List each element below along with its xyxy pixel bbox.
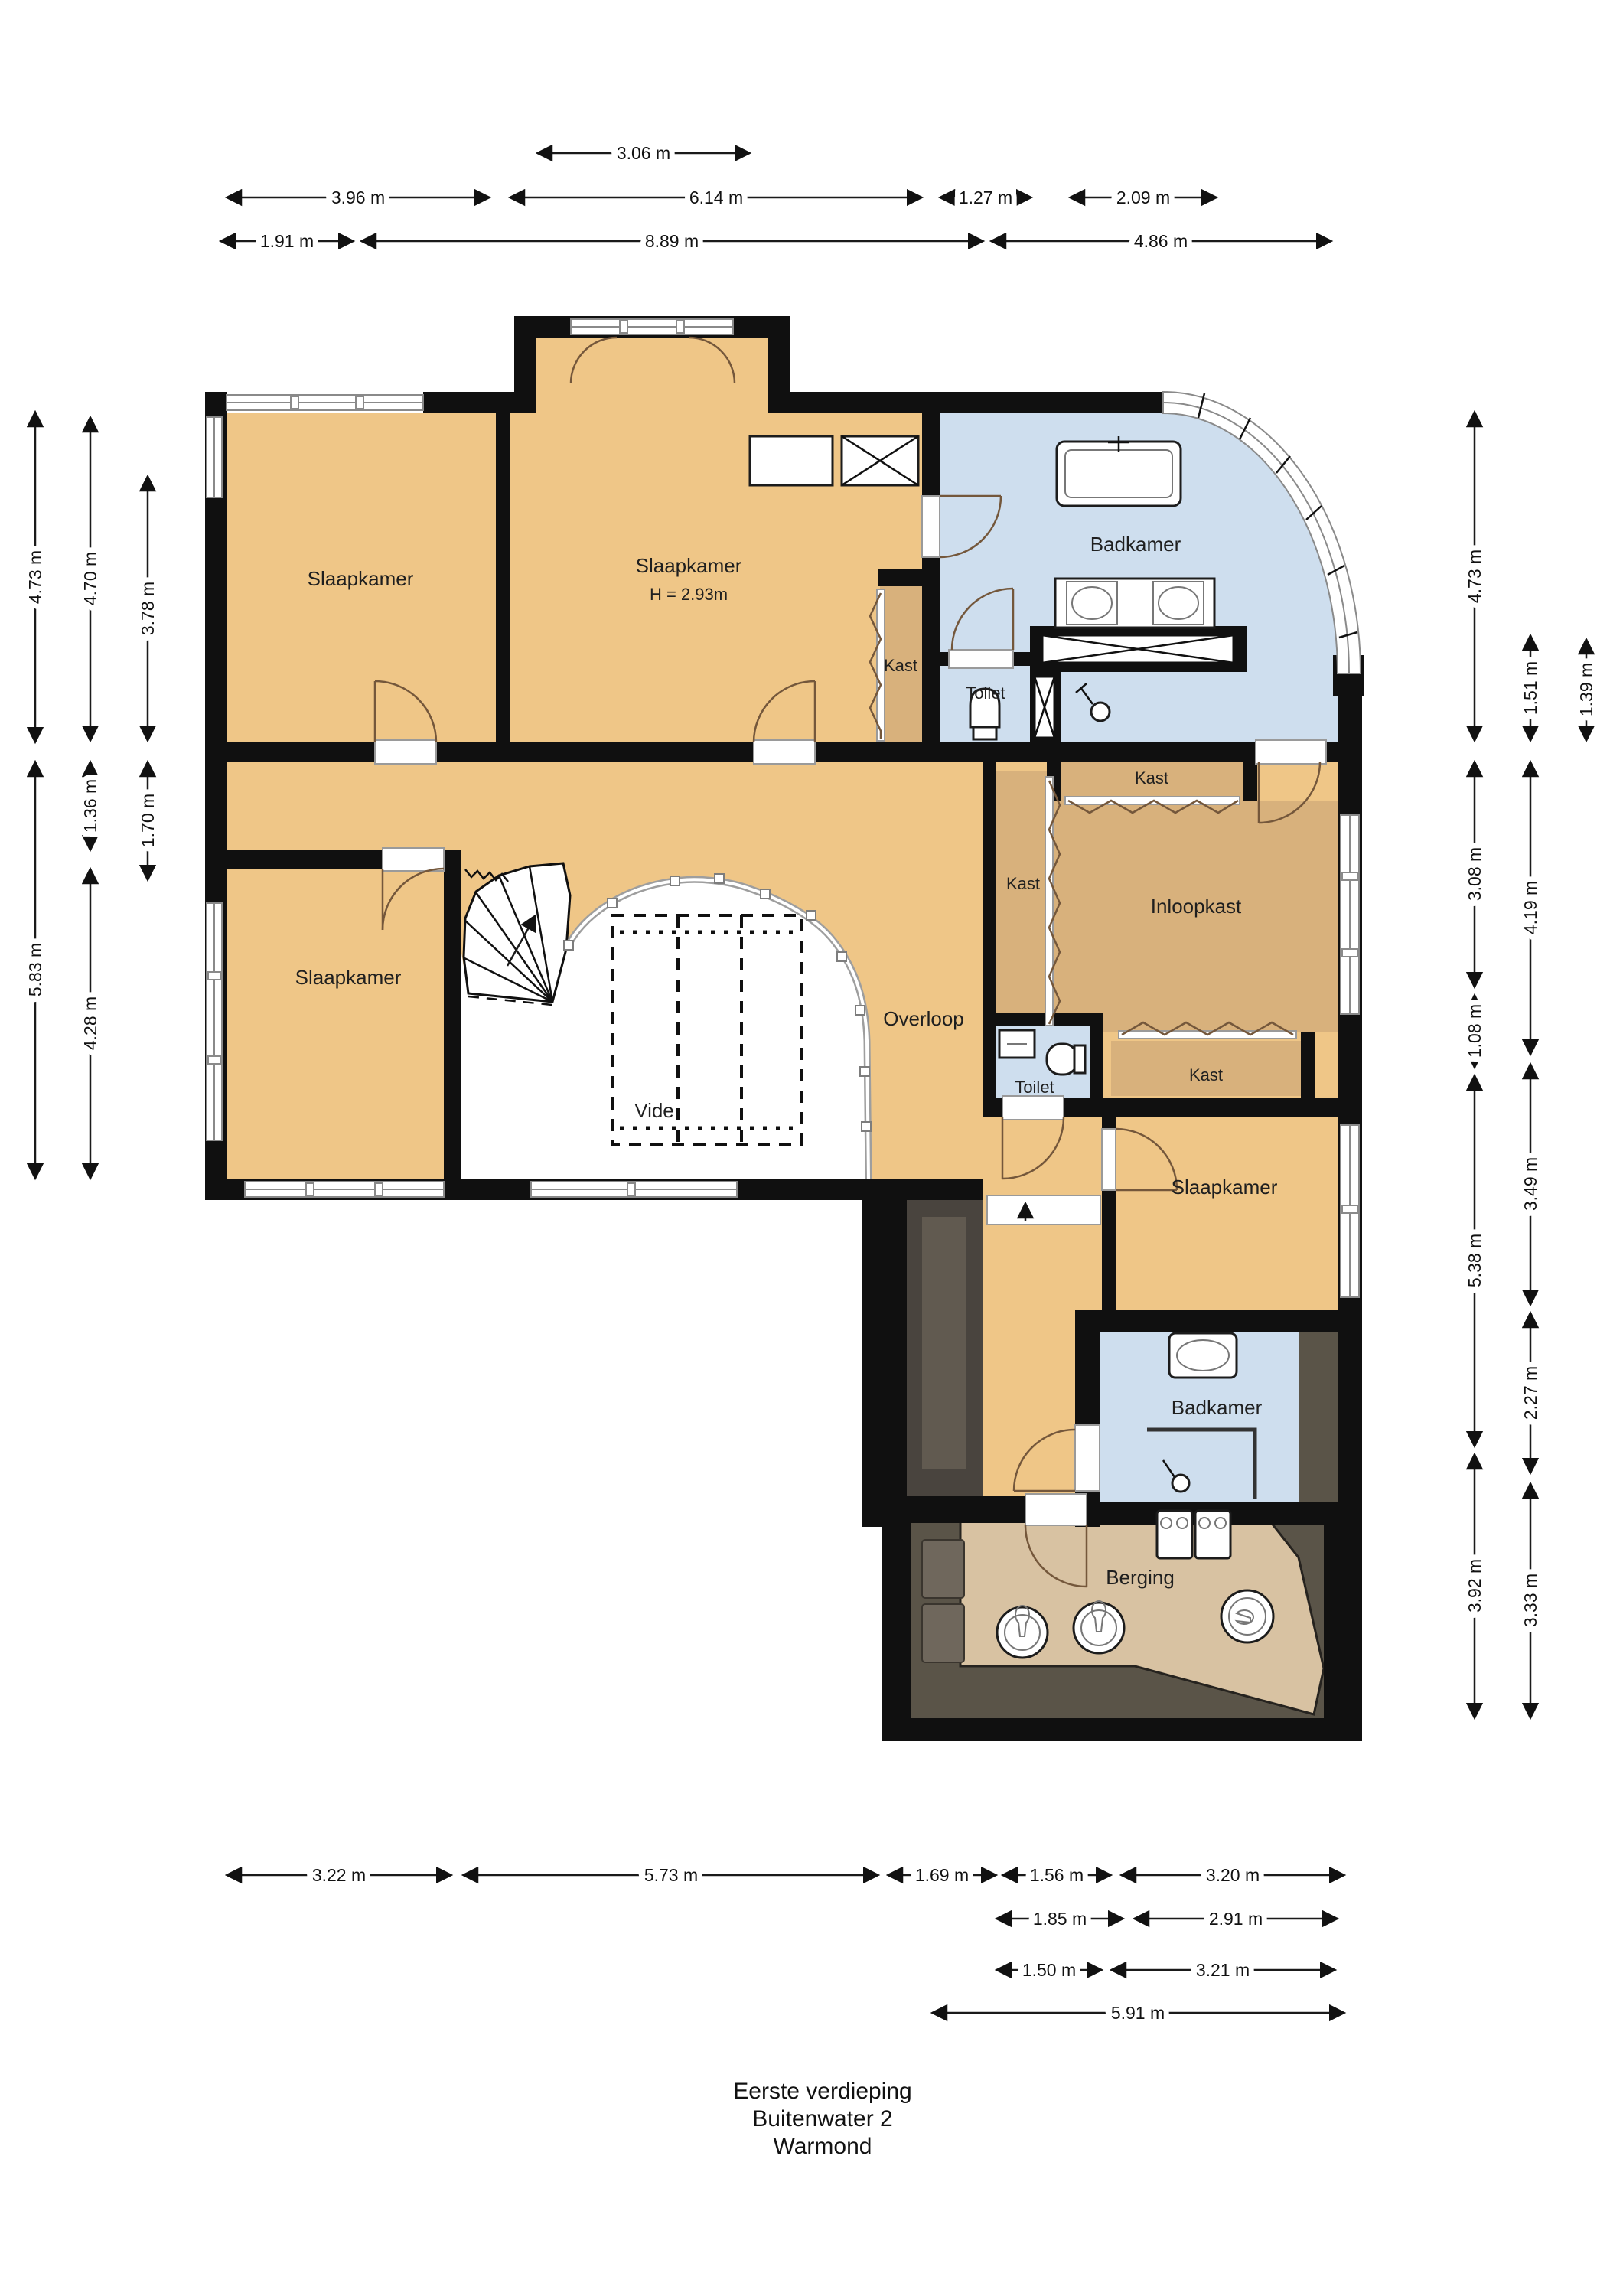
window-top-left: [227, 395, 423, 410]
stairs-down-marker: [987, 1195, 1100, 1225]
dim: 4.73 m: [1465, 412, 1484, 741]
room-label-slaapkamer-bl: Slaapkamer: [295, 966, 402, 989]
svg-text:3.06 m: 3.06 m: [617, 143, 670, 163]
dim: 1.85 m: [996, 1909, 1123, 1929]
svg-text:1.39 m: 1.39 m: [1576, 663, 1596, 716]
svg-text:5.83 m: 5.83 m: [25, 943, 45, 996]
wall-outer-right: [1338, 673, 1362, 1527]
svg-text:1.27 m: 1.27 m: [959, 188, 1012, 207]
svg-text:1.91 m: 1.91 m: [260, 231, 314, 251]
dim: 3.49 m: [1520, 1064, 1540, 1305]
dim: 3.33 m: [1520, 1483, 1540, 1718]
svg-text:1.70 m: 1.70 m: [138, 794, 158, 847]
dim: 2.09 m: [1070, 188, 1217, 207]
room-label-kast-lower: Kast: [1189, 1065, 1223, 1084]
svg-text:3.21 m: 3.21 m: [1196, 1960, 1250, 1980]
dimensions-right: 4.73 m 3.08 m 1.08 m 5.38 m 3.92 m 1.51 …: [1465, 412, 1596, 1718]
berging-cabinet-2: [922, 1604, 964, 1662]
double-washbasin-icon: [1055, 579, 1214, 628]
dim: 2.91 m: [1134, 1909, 1338, 1929]
svg-text:3.49 m: 3.49 m: [1520, 1157, 1540, 1211]
svg-text:1.69 m: 1.69 m: [915, 1865, 969, 1885]
dim: 1.56 m: [1002, 1865, 1111, 1885]
dim: 3.21 m: [1111, 1960, 1335, 1980]
room-label-kast-top: Kast: [1135, 768, 1168, 788]
svg-text:4.73 m: 4.73 m: [25, 550, 45, 604]
svg-text:3.92 m: 3.92 m: [1465, 1559, 1484, 1613]
wall-toilet-mid-top: [983, 1013, 1103, 1026]
title-block: Eerste verdieping Buitenwater 2 Warmond: [733, 2079, 911, 2159]
dim: 1.27 m: [940, 188, 1031, 207]
dim: 4.28 m: [80, 869, 100, 1179]
room-label-slaapkamer-tl: Slaapkamer: [308, 567, 414, 590]
svg-text:4.70 m: 4.70 m: [80, 552, 100, 605]
svg-text:5.73 m: 5.73 m: [644, 1865, 698, 1885]
svg-text:3.78 m: 3.78 m: [138, 582, 158, 635]
room-label-toilet-top: Toilet: [966, 683, 1005, 703]
wall-top-b: [790, 392, 1178, 413]
dimensions-top: 3.06 m 3.96 m 6.14 m 1.27 m 2.09 m 1.91 …: [220, 143, 1331, 251]
svg-text:2.27 m: 2.27 m: [1520, 1366, 1540, 1420]
room-label-slaapkamer-br: Slaapkamer: [1172, 1176, 1278, 1199]
title-address: Buitenwater 2: [752, 2106, 892, 2131]
svg-text:1.50 m: 1.50 m: [1022, 1960, 1076, 1980]
title-floor: Eerste verdieping: [733, 2079, 911, 2104]
dim: 3.20 m: [1121, 1865, 1344, 1885]
room-label-slaapkamer-tc: Slaapkamer: [636, 554, 742, 577]
svg-text:1.85 m: 1.85 m: [1033, 1909, 1087, 1929]
roof-strip-badkamer: [1299, 1332, 1340, 1508]
dim: 5.91 m: [932, 2003, 1344, 2023]
room-label-vide: Vide: [634, 1099, 674, 1122]
svg-text:1.51 m: 1.51 m: [1520, 661, 1540, 715]
dim: 1.69 m: [888, 1865, 996, 1885]
dim: 4.86 m: [991, 231, 1331, 251]
svg-text:3.33 m: 3.33 m: [1520, 1574, 1540, 1627]
svg-text:5.91 m: 5.91 m: [1111, 2003, 1165, 2023]
wall-top-a: [423, 392, 514, 413]
dim: 5.73 m: [463, 1865, 878, 1885]
wall-kast-top-right: [1243, 762, 1257, 801]
room-label-kast-bedroom2: Kast: [884, 656, 917, 675]
dim: 3.06 m: [537, 143, 750, 163]
wall-kast-mid-left: [983, 762, 996, 1117]
dim: 1.08 m: [1465, 995, 1484, 1068]
svg-text:3.20 m: 3.20 m: [1206, 1865, 1260, 1885]
svg-text:1.36 m: 1.36 m: [80, 779, 100, 833]
window-left-lower: [207, 903, 222, 1140]
wall-berging-bottom: [882, 1718, 1362, 1741]
window-dormer: [571, 319, 733, 334]
wall-berging-top-l: [907, 1496, 1025, 1523]
title-city: Warmond: [774, 2134, 872, 2159]
bathtub-icon: [1057, 436, 1181, 506]
floorplan-drawing: Slaapkamer Slaapkamer H = 2.93m Badkamer…: [0, 0, 1623, 2296]
window-left-upper: [207, 417, 222, 497]
dim: 3.96 m: [227, 188, 490, 207]
dim: 3.08 m: [1465, 762, 1484, 987]
floorplan-page: Slaapkamer Slaapkamer H = 2.93m Badkamer…: [0, 0, 1623, 2296]
toilet-mid-wc-icon: [1047, 1044, 1085, 1075]
svg-text:1.56 m: 1.56 m: [1030, 1865, 1084, 1885]
wall-bl-right: [444, 869, 461, 1179]
dim: 4.19 m: [1520, 762, 1540, 1055]
svg-text:5.38 m: 5.38 m: [1465, 1234, 1484, 1287]
dim: 1.51 m: [1520, 635, 1540, 741]
svg-text:4.28 m: 4.28 m: [80, 996, 100, 1050]
svg-text:4.19 m: 4.19 m: [1520, 881, 1540, 934]
berging-cabinet-1: [922, 1540, 964, 1598]
dim: 5.83 m: [25, 762, 45, 1179]
dim: 1.39 m: [1576, 639, 1596, 741]
room-label-overloop: Overloop: [883, 1007, 964, 1030]
dim: 4.70 m: [80, 417, 100, 741]
window-bottom-vide: [531, 1182, 737, 1197]
room-slaapkamer-br-floor: [1102, 1117, 1338, 1310]
wall-dormer-right: [768, 316, 790, 413]
svg-text:2.09 m: 2.09 m: [1116, 188, 1170, 207]
room-label-kast-mid: Kast: [1006, 874, 1040, 893]
dimensions-bottom: 3.22 m 5.73 m 1.69 m 1.56 m 3.20 m 1.85 …: [227, 1865, 1344, 2023]
svg-text:2.91 m: 2.91 m: [1209, 1909, 1263, 1929]
room-label-badkamer-bottom: Badkamer: [1172, 1396, 1263, 1419]
dim: 1.50 m: [996, 1960, 1102, 1980]
wall-bedroom2-bath: [922, 413, 940, 742]
window-right-inloopkast: [1341, 815, 1359, 1014]
room-label-slaapkamer-tc-height: H = 2.93m: [650, 585, 728, 604]
wall-corridor-left: [862, 1179, 907, 1527]
dimensions-left: 4.73 m 5.83 m 4.70 m 1.36 m 4.28 m 3.78 …: [25, 412, 158, 1179]
svg-text:4.86 m: 4.86 m: [1134, 231, 1188, 251]
bathtub-bottom-icon: [1169, 1333, 1237, 1378]
dim: 1.91 m: [220, 231, 354, 251]
wall-berging-left: [882, 1523, 911, 1741]
toilet-mid-sink-icon: [999, 1030, 1035, 1058]
wall-badkamer2-top: [1075, 1310, 1362, 1332]
window-right-slaapkamer: [1341, 1125, 1359, 1297]
dim: 8.89 m: [361, 231, 983, 251]
wall-berging-right: [1324, 1523, 1362, 1741]
roof-strip-inner: [922, 1217, 966, 1469]
dim: 2.27 m: [1520, 1313, 1540, 1473]
dim: 1.36 m: [80, 762, 100, 850]
room-label-inloopkast: Inloopkast: [1151, 895, 1242, 918]
dim: 3.92 m: [1465, 1454, 1484, 1718]
svg-text:3.08 m: 3.08 m: [1465, 847, 1484, 901]
dim: 3.22 m: [227, 1865, 451, 1885]
window-bottom-left: [245, 1182, 444, 1197]
room-label-badkamer-top: Badkamer: [1090, 533, 1181, 556]
wall-kast1-cap: [878, 569, 922, 586]
svg-text:3.22 m: 3.22 m: [312, 1865, 366, 1885]
svg-text:1.08 m: 1.08 m: [1465, 1004, 1484, 1058]
wall-berging-top-r: [1301, 1502, 1362, 1525]
dim: 6.14 m: [510, 188, 922, 207]
wall-bedroom-divider: [496, 413, 510, 742]
room-label-berging: Berging: [1106, 1566, 1175, 1589]
svg-text:4.73 m: 4.73 m: [1465, 550, 1484, 603]
svg-text:6.14 m: 6.14 m: [689, 188, 743, 207]
dim: 5.38 m: [1465, 1075, 1484, 1446]
dim: 3.78 m: [138, 476, 158, 741]
dim: 1.70 m: [138, 762, 158, 880]
svg-text:8.89 m: 8.89 m: [645, 231, 699, 251]
dim: 4.73 m: [25, 412, 45, 742]
room-label-toilet-mid: Toilet: [1015, 1078, 1054, 1097]
svg-text:3.96 m: 3.96 m: [331, 188, 385, 207]
